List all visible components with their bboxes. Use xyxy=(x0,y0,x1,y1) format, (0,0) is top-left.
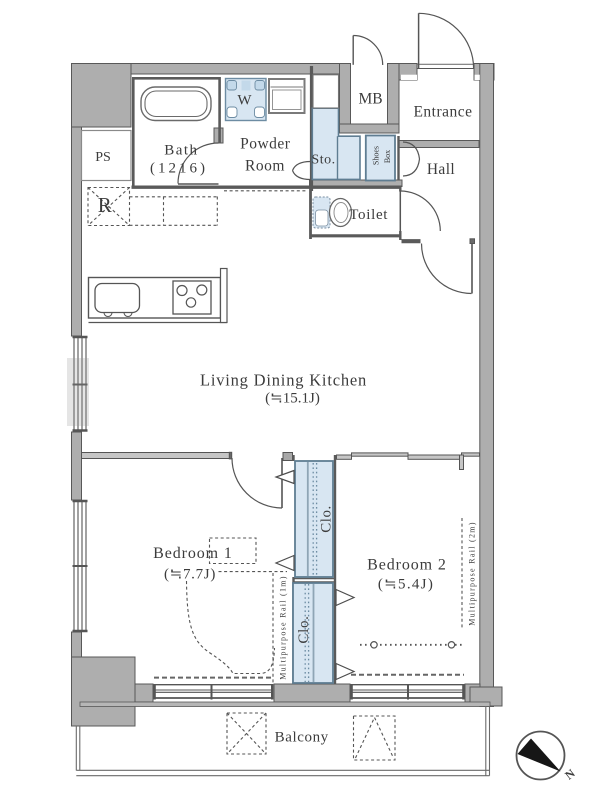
svg-text:PS: PS xyxy=(95,150,111,165)
svg-text:Balcony: Balcony xyxy=(275,730,329,746)
svg-text:Clo.: Clo. xyxy=(319,505,335,532)
svg-text:Clo.: Clo. xyxy=(296,615,312,643)
svg-text:Multipurpose Rail (2m): Multipurpose Rail (2m) xyxy=(467,521,476,626)
svg-text:Powder: Powder xyxy=(240,136,291,153)
svg-text:(≒15.1J): (≒15.1J) xyxy=(265,391,320,407)
svg-text:(1216): (1216) xyxy=(150,161,208,177)
svg-text:Entrance: Entrance xyxy=(413,104,472,121)
svg-text:Toilet: Toilet xyxy=(349,207,388,223)
svg-text:W: W xyxy=(237,93,252,109)
svg-text:Bath: Bath xyxy=(164,143,198,159)
svg-text:MB: MB xyxy=(358,91,382,108)
svg-text:Box: Box xyxy=(383,150,392,163)
svg-text:Bedroom 2: Bedroom 2 xyxy=(367,557,447,574)
svg-text:Multipurpose Rail (1m): Multipurpose Rail (1m) xyxy=(278,575,287,680)
svg-text:(≒7.7J): (≒7.7J) xyxy=(164,567,216,583)
svg-text:R: R xyxy=(98,193,112,217)
svg-text:Room: Room xyxy=(245,158,285,175)
svg-text:Hall: Hall xyxy=(427,161,455,178)
svg-text:Bedroom 1: Bedroom 1 xyxy=(153,545,233,562)
svg-text:Sto.: Sto. xyxy=(311,153,335,168)
svg-text:Living Dining Kitchen: Living Dining Kitchen xyxy=(200,371,367,390)
svg-text:Shoes: Shoes xyxy=(371,146,380,165)
svg-text:(≒5.4J): (≒5.4J) xyxy=(378,577,434,593)
